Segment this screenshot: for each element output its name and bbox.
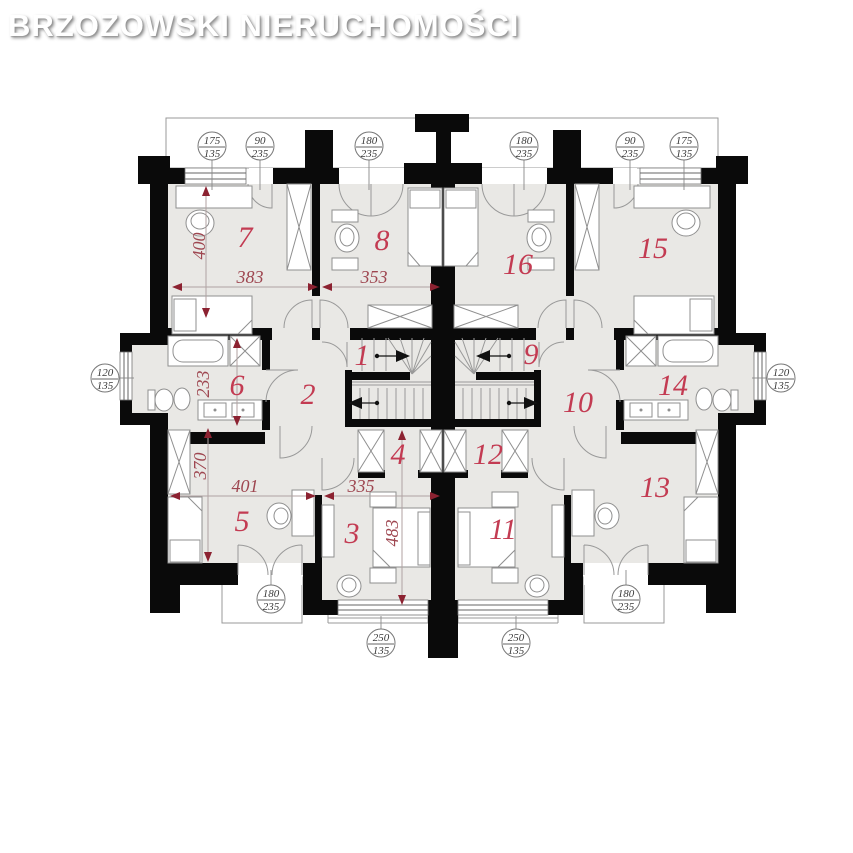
wardrobe — [168, 430, 190, 494]
wardrobe — [696, 430, 718, 494]
washbasin — [672, 210, 700, 236]
room-number-9: 9 — [524, 338, 539, 371]
window-250-right — [458, 600, 548, 615]
room-number-8: 8 — [375, 224, 390, 257]
svg-text:90: 90 — [625, 135, 637, 147]
room-number-15: 15 — [638, 232, 668, 265]
svg-text:135: 135 — [373, 645, 390, 657]
desk — [572, 490, 594, 536]
svg-text:135: 135 — [773, 380, 790, 392]
nightstand — [492, 492, 518, 507]
dimension-401: 401 — [232, 476, 259, 496]
floor-plan-svg: 400 383 353 233 370 401 — [0, 0, 853, 853]
window-120-left — [120, 352, 132, 400]
desk — [176, 186, 252, 208]
room-number-3: 3 — [344, 517, 360, 550]
bed — [444, 188, 478, 266]
room-number-14: 14 — [658, 369, 688, 402]
nightstand — [492, 568, 518, 583]
dimension-383: 383 — [236, 267, 264, 287]
nightstand — [370, 568, 396, 583]
bed — [168, 497, 202, 563]
svg-text:180: 180 — [361, 135, 378, 147]
svg-text:235: 235 — [622, 148, 639, 160]
dimension-370: 370 — [190, 453, 210, 481]
room-number-11: 11 — [489, 513, 517, 546]
dimension-483: 483 — [382, 520, 402, 547]
wardrobe — [575, 184, 599, 270]
watermark: BRZOZOWSKI NIERUCHOMOŚCI — [8, 8, 519, 44]
dimension-353: 353 — [360, 267, 388, 287]
toilet — [713, 389, 738, 411]
dresser — [368, 305, 432, 328]
washbasin — [337, 575, 361, 597]
svg-text:135: 135 — [676, 148, 693, 160]
svg-text:180: 180 — [516, 135, 533, 147]
svg-text:180: 180 — [263, 588, 280, 600]
svg-text:180: 180 — [618, 588, 635, 600]
window-250-left — [338, 600, 428, 615]
wardrobe — [358, 430, 384, 472]
window-callout: 250135 — [502, 616, 530, 657]
room-number-10: 10 — [563, 386, 593, 419]
wardrobe — [287, 184, 311, 270]
svg-text:135: 135 — [97, 380, 114, 392]
bed — [172, 296, 252, 334]
bathtub — [658, 336, 718, 366]
svg-text:135: 135 — [204, 148, 221, 160]
toilet — [148, 389, 173, 411]
svg-text:235: 235 — [516, 148, 533, 160]
room-number-13: 13 — [640, 471, 670, 504]
room-number-16: 16 — [503, 248, 533, 281]
double-sink — [198, 400, 262, 420]
shower — [626, 336, 656, 366]
bidet — [174, 388, 190, 410]
washbasin — [267, 503, 291, 529]
svg-text:235: 235 — [263, 601, 280, 613]
room-number-7: 7 — [238, 221, 255, 254]
washbasin — [525, 575, 549, 597]
wardrobe — [444, 430, 466, 472]
window-175-right — [640, 168, 701, 184]
room-number-5: 5 — [235, 505, 250, 538]
room-number-4: 4 — [391, 438, 406, 471]
bidet — [696, 388, 712, 410]
svg-text:90: 90 — [255, 135, 267, 147]
dimension-233: 233 — [193, 371, 213, 398]
window-120-right — [754, 352, 766, 400]
bed — [634, 296, 714, 334]
svg-text:120: 120 — [97, 367, 114, 379]
room-number-12: 12 — [473, 438, 503, 471]
shelf — [322, 505, 334, 557]
washbasin — [595, 503, 619, 529]
shelf — [552, 505, 564, 557]
svg-text:250: 250 — [373, 632, 390, 644]
window-175-left — [185, 168, 246, 184]
desk — [634, 186, 710, 208]
washbasin — [186, 210, 214, 236]
room-number-1: 1 — [355, 339, 370, 372]
room-number-2: 2 — [301, 378, 316, 411]
svg-text:175: 175 — [204, 135, 221, 147]
svg-text:235: 235 — [252, 148, 269, 160]
svg-text:250: 250 — [508, 632, 525, 644]
dimension-400: 400 — [189, 233, 209, 260]
dresser — [454, 305, 518, 328]
window-callout: 250135 — [367, 616, 395, 657]
bed — [408, 188, 442, 266]
room-number-6: 6 — [230, 369, 245, 402]
wardrobe — [502, 430, 528, 472]
shower — [230, 336, 260, 366]
wardrobe — [420, 430, 442, 472]
floor-plan-page: 400 383 353 233 370 401 — [0, 0, 853, 853]
svg-text:235: 235 — [618, 601, 635, 613]
svg-text:135: 135 — [508, 645, 525, 657]
svg-text:120: 120 — [773, 367, 790, 379]
svg-text:175: 175 — [676, 135, 693, 147]
bathtub — [168, 336, 228, 366]
dimension-335: 335 — [347, 476, 375, 496]
svg-text:235: 235 — [361, 148, 378, 160]
bed — [684, 497, 718, 563]
washbasin — [332, 210, 359, 270]
double-sink — [624, 400, 688, 420]
